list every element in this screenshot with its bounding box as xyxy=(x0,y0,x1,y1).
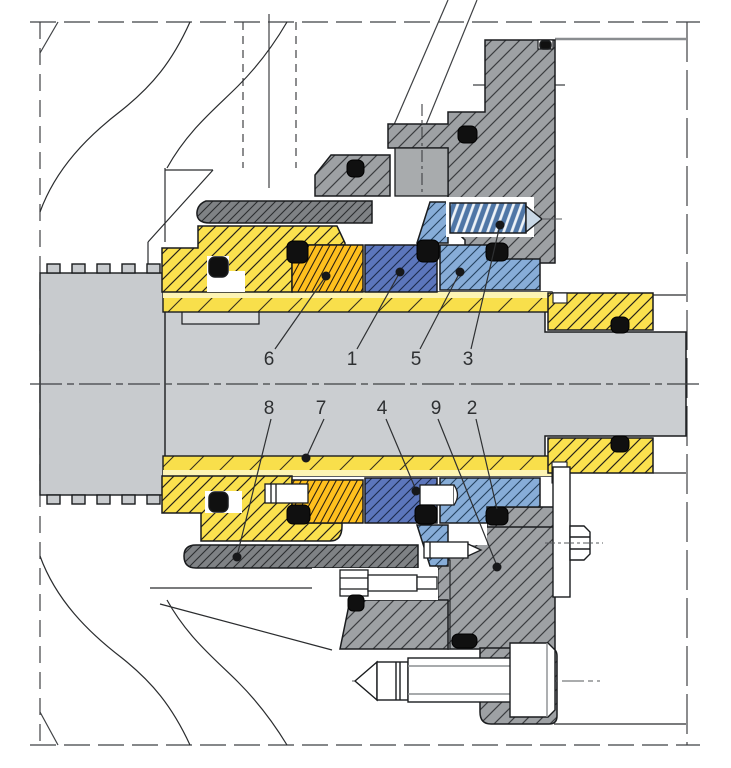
sleeve-highlight-lower xyxy=(163,470,552,476)
gland-bolt-shank xyxy=(368,575,417,591)
o-ring-icon xyxy=(287,241,308,263)
dot-4 xyxy=(412,487,421,496)
dot-9 xyxy=(493,563,502,572)
o-ring-icon xyxy=(611,436,629,452)
collar-notch-upper xyxy=(553,293,567,303)
plug-neck xyxy=(377,662,410,700)
o-ring-gland-top-icon xyxy=(540,41,551,49)
dot-3 xyxy=(496,221,505,230)
o-ring-retainer-upper-icon xyxy=(209,257,228,277)
housing-chamfer-lower xyxy=(160,604,332,650)
callout-label-9: 9 xyxy=(431,398,442,419)
o-ring-icon xyxy=(611,317,629,333)
gland-bolt-head xyxy=(340,570,368,596)
seat-wedge-upper xyxy=(417,202,448,243)
o-ring-icon xyxy=(347,160,364,177)
bottom-port xyxy=(352,643,600,717)
leader-line-cutoff-port-1 xyxy=(393,0,448,127)
o-ring-icon xyxy=(486,507,508,525)
plug-cone-tip xyxy=(355,662,377,700)
callout-label-4: 4 xyxy=(377,398,388,419)
gland-bolt-pilot xyxy=(417,577,437,589)
dot-5 xyxy=(456,268,465,277)
corner-tick-bottom-left xyxy=(40,712,58,745)
callout-label-5: 5 xyxy=(411,349,422,370)
o-ring-icon xyxy=(415,505,437,524)
seal-section-drawing: 6 1 5 3 8 7 4 9 2 xyxy=(0,0,731,768)
hub-teeth-upper xyxy=(47,264,160,273)
o-ring-icon xyxy=(486,243,508,261)
sleeve-collar-right-upper xyxy=(548,293,653,330)
callout-label-8: 8 xyxy=(264,398,275,419)
housing-curve-upper-1 xyxy=(40,22,190,212)
callout-label-3: 3 xyxy=(463,349,474,370)
hub-teeth-lower xyxy=(47,495,160,504)
o-ring-retainer-lower-icon xyxy=(209,492,228,512)
o-ring-icon xyxy=(452,634,477,648)
o-ring-icon xyxy=(287,505,310,524)
stud-end xyxy=(510,643,555,717)
callout-label-7: 7 xyxy=(316,398,327,419)
sleeve-highlight-upper xyxy=(163,292,552,298)
set-screw-right xyxy=(420,485,454,505)
corner-tick-top-left xyxy=(40,22,58,53)
gland-flange-bar xyxy=(553,467,570,597)
dot-6 xyxy=(322,272,331,281)
plug-body xyxy=(408,658,512,702)
dot-7 xyxy=(302,454,311,463)
o-ring-icon xyxy=(417,240,439,262)
drive-collar-lower xyxy=(184,545,418,568)
dot-1 xyxy=(396,268,405,277)
coil-spring-icon xyxy=(450,203,526,233)
o-ring-bolt-icon xyxy=(348,595,364,611)
technical-drawing-canvas: 6 1 5 3 8 7 4 9 2 xyxy=(0,0,731,768)
gland-flange-fasteners xyxy=(545,467,603,597)
callout-label-6: 6 xyxy=(264,349,275,370)
o-ring-icon xyxy=(458,126,477,143)
drive-collar-upper xyxy=(197,201,372,223)
callout-label-2: 2 xyxy=(467,398,478,419)
callout-label-1: 1 xyxy=(347,349,358,370)
dot-8 xyxy=(233,553,242,562)
housing-curve-lower-1 xyxy=(40,556,190,745)
